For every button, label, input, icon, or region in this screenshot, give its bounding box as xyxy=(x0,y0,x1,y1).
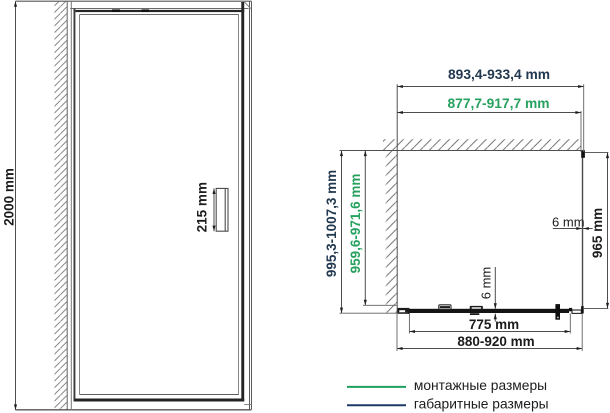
svg-text:6 mm: 6 mm xyxy=(478,267,493,300)
svg-text:2000 mm: 2000 mm xyxy=(2,168,17,226)
svg-text:995,3-1007,3 mm: 995,3-1007,3 mm xyxy=(324,170,339,277)
svg-text:6 mm: 6 mm xyxy=(552,214,585,229)
svg-text:877,7-917,7 mm: 877,7-917,7 mm xyxy=(447,96,549,111)
svg-text:монтажные размеры: монтажные размеры xyxy=(414,378,547,393)
svg-text:215 mm: 215 mm xyxy=(194,182,209,232)
svg-text:габаритные размеры: габаритные размеры xyxy=(414,396,549,411)
svg-text:880-920 mm: 880-920 mm xyxy=(457,334,534,349)
svg-text:959,6-971,6 mm: 959,6-971,6 mm xyxy=(348,174,363,274)
svg-text:775 mm: 775 mm xyxy=(469,317,519,332)
svg-text:965 mm: 965 mm xyxy=(590,208,605,258)
svg-text:893,4-933,4 mm: 893,4-933,4 mm xyxy=(448,67,550,82)
